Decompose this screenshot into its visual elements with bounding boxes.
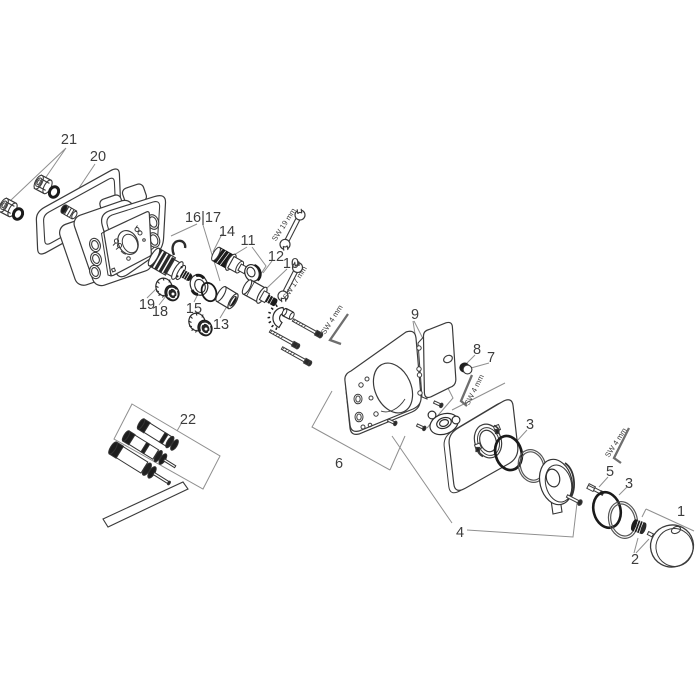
svg-text:6: 6	[335, 456, 343, 472]
svg-text:13: 13	[213, 317, 229, 333]
svg-text:7: 7	[487, 350, 495, 366]
svg-text:10: 10	[283, 256, 299, 272]
svg-text:2: 2	[631, 552, 639, 568]
svg-text:9: 9	[411, 307, 419, 323]
svg-text:21: 21	[61, 132, 77, 148]
svg-text:8: 8	[473, 342, 481, 358]
svg-text:3: 3	[625, 476, 633, 492]
svg-text:16|17: 16|17	[185, 210, 221, 226]
svg-text:11: 11	[240, 233, 255, 249]
svg-text:3: 3	[526, 417, 534, 433]
svg-text:4: 4	[456, 525, 464, 541]
svg-text:22: 22	[180, 412, 196, 428]
svg-text:20: 20	[90, 149, 106, 165]
svg-text:1: 1	[677, 504, 685, 520]
svg-text:5: 5	[606, 464, 614, 480]
svg-text:14: 14	[219, 224, 235, 240]
svg-text:15: 15	[186, 301, 202, 317]
svg-text:18: 18	[152, 304, 168, 320]
svg-text:12: 12	[268, 249, 284, 265]
